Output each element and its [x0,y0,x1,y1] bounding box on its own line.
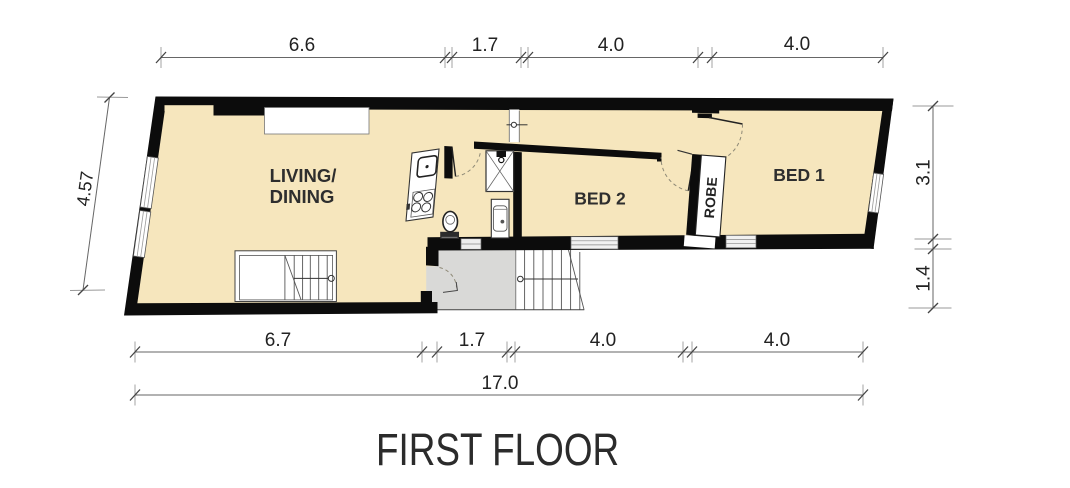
svg-text:BED 1: BED 1 [773,165,825,185]
svg-text:17.0: 17.0 [482,373,519,394]
svg-text:4.0: 4.0 [764,330,790,351]
svg-text:6.6: 6.6 [289,35,315,56]
svg-text:4.0: 4.0 [590,330,616,351]
svg-text:4.0: 4.0 [784,34,810,55]
svg-text:3.1: 3.1 [914,159,935,185]
svg-text:6.7: 6.7 [265,330,291,351]
svg-text:4.0: 4.0 [598,35,624,56]
svg-text:1.4: 1.4 [914,265,935,292]
svg-text:LIVING/: LIVING/ [270,165,337,186]
svg-text:FIRST FLOOR: FIRST FLOOR [376,425,619,475]
svg-text:DINING: DINING [270,186,335,207]
svg-text:BED 2: BED 2 [574,189,626,209]
svg-text:ROBE: ROBE [701,176,720,219]
svg-text:1.7: 1.7 [472,35,498,56]
svg-text:1.7: 1.7 [459,330,485,351]
